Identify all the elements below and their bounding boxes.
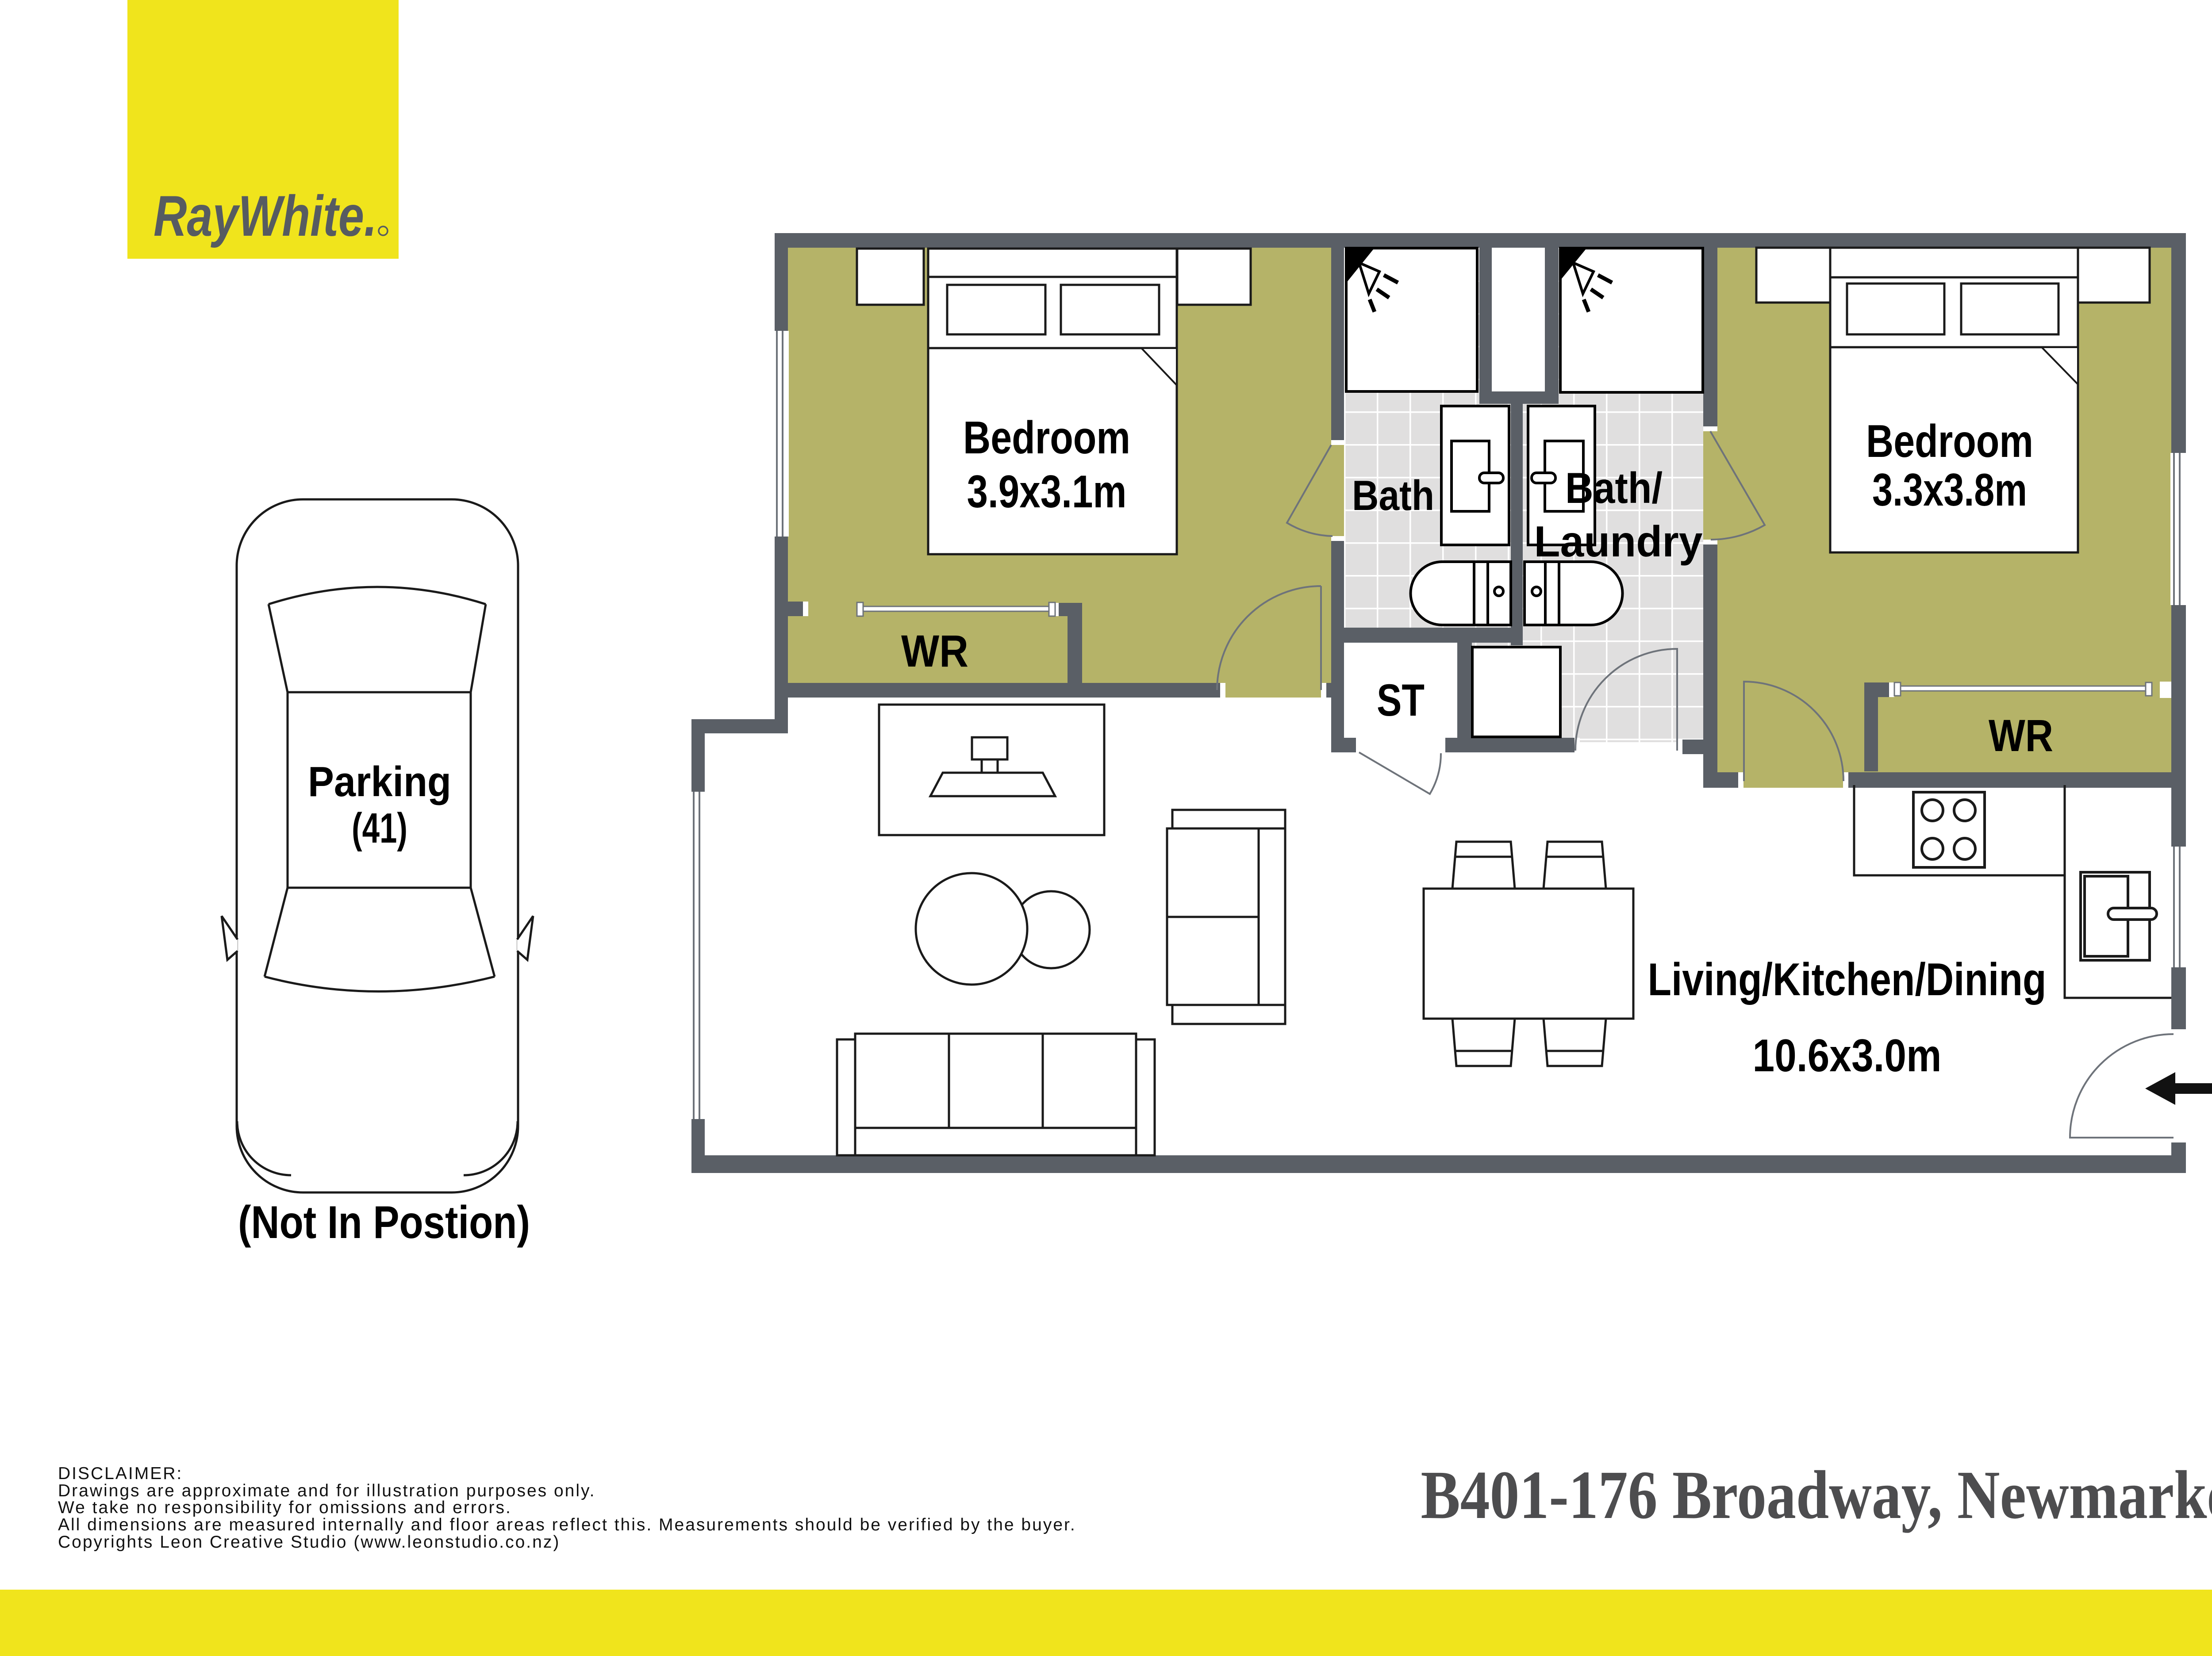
svg-text:ST: ST — [1377, 675, 1425, 725]
svg-text:(41): (41) — [352, 805, 407, 852]
svg-text:Parking: Parking — [308, 758, 451, 805]
svg-text:3.3x3.8m: 3.3x3.8m — [1872, 464, 2027, 516]
svg-text:Drawings are approximate and f: Drawings are approximate and for illustr… — [58, 1481, 595, 1500]
svg-text:B401-176 Broadway, Newmarket: B401-176 Broadway, Newmarket — [1421, 1457, 2212, 1533]
svg-text:WR: WR — [901, 626, 968, 676]
svg-text:RayWhite.: RayWhite. — [154, 184, 377, 248]
svg-text:Bath: Bath — [1352, 472, 1434, 519]
svg-text:WR: WR — [1989, 710, 2053, 761]
svg-text:Living/Kitchen/Dining: Living/Kitchen/Dining — [1648, 954, 2047, 1005]
svg-text:10.6x3.0m: 10.6x3.0m — [1753, 1030, 1942, 1081]
svg-text:Bedroom: Bedroom — [1866, 416, 2033, 467]
svg-text:All dimensions are measured in: All dimensions are measured internally a… — [58, 1515, 1076, 1534]
svg-text:We take no responsibility for: We take no responsibility for omissions … — [58, 1498, 512, 1517]
svg-text:DISCLAIMER:: DISCLAIMER: — [58, 1464, 183, 1483]
svg-text:(Not In Postion): (Not In Postion) — [238, 1197, 530, 1248]
svg-text:Bedroom: Bedroom — [963, 412, 1130, 464]
svg-text:3.9x3.1m: 3.9x3.1m — [967, 466, 1127, 517]
svg-text:Bath/: Bath/ — [1565, 464, 1663, 512]
svg-text:Laundry: Laundry — [1534, 517, 1703, 566]
svg-text:Copyrights Leon Creative Studi: Copyrights Leon Creative Studio (www.leo… — [58, 1533, 560, 1552]
